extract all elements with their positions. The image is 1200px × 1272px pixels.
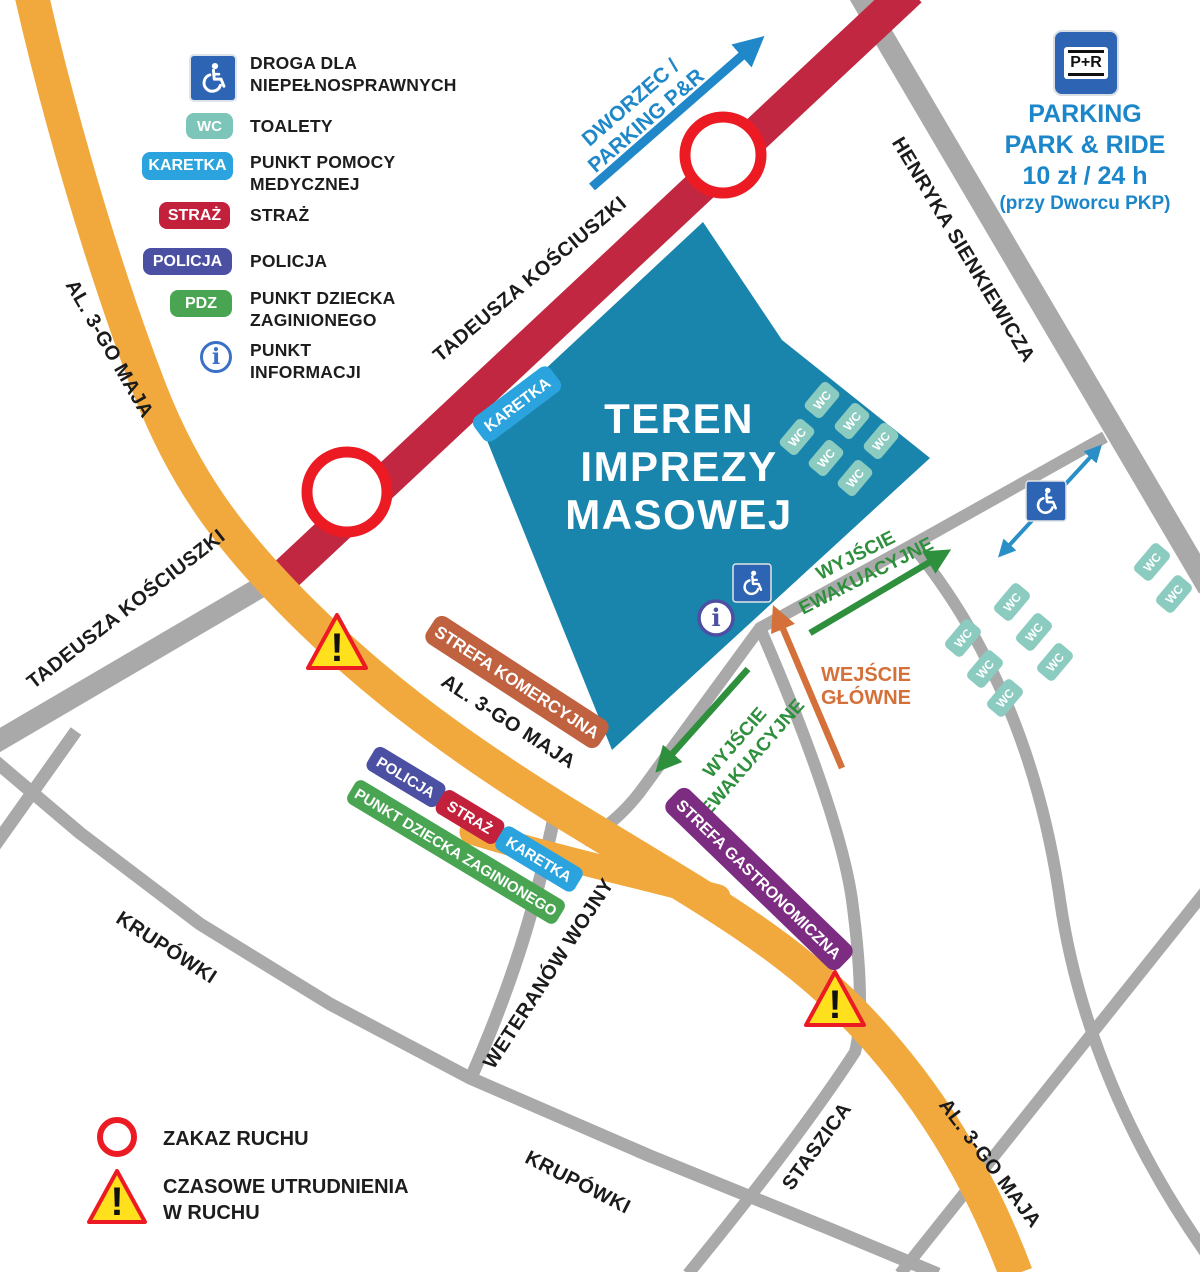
legend-label: DROGA DLANIEPEŁNOSPRAWNYCH [250,52,457,96]
svg-text:i: i [711,603,720,632]
legend-label: STRAŻ [250,204,309,226]
wc-badge: WC [1035,641,1075,683]
parking-note: (przy Dworcu PKP) [965,192,1200,216]
wheelchair-icon [733,564,771,602]
wheelchair-icon [1026,481,1066,521]
svg-text:!: ! [828,983,841,1027]
main-entrance-label: WEJŚCIE GŁÓWNE [821,662,911,709]
wheelchair-icon [189,54,237,102]
event-area-title: TEREN [604,395,754,442]
info-point-icon: i [699,601,733,635]
pdz-badge: PDZ [170,290,232,317]
karetka-badge: KARETKA [142,152,233,180]
legend-label: PUNKT POMOCYMEDYCZNEJ [250,151,395,195]
svg-text:!: ! [330,626,343,670]
parking-title: PARKING [965,99,1200,130]
park-and-ride-sign-icon: P+R [1053,30,1119,96]
info-icon: i [200,341,232,373]
policja-badge: POLICJA [143,248,232,275]
wc-badge: WC [1014,611,1054,653]
event-area-title: MASOWEJ [565,491,793,538]
street-label-krupowki-mid: KRUPÓWKI [521,1145,634,1219]
wc-badge: WC [186,113,233,139]
svg-text:WEJŚCIE: WEJŚCIE [821,662,911,686]
wc-badge: WC [1154,573,1194,615]
wc-badge: WC [985,677,1025,719]
svg-text:GŁÓWNE: GŁÓWNE [821,685,911,709]
no-traffic-circle-icon [307,452,387,532]
wc-badge: WC [992,581,1032,623]
legend-label: TOALETY [250,115,333,137]
straz-badge: STRAŻ [159,202,230,229]
legend-label: PUNKTINFORMACJI [250,339,361,383]
event-area-title: IMPREZY [580,443,777,490]
legend-label: POLICJA [250,250,327,272]
parking-subtitle: PARK & RIDE [965,130,1200,161]
wc-cluster-parking: WC WC WC WC WC WC WC WC [943,541,1194,719]
parking-price: 10 zł / 24 h [965,161,1200,192]
legend-label: PUNKT DZIECKAZAGINIONEGO [250,287,396,331]
warning-triangle-icon: ! [89,1171,145,1224]
road-diagonal-right [900,888,1200,1272]
wc-badge: WC [1132,541,1172,583]
street-label-krupowki-left: KRUPÓWKI [112,906,222,989]
czasowe-utrudnienia-label: CZASOWE UTRUDNIENIAW RUCHU [163,1174,409,1226]
zakaz-ruchu-label: ZAKAZ RUCHU [163,1126,309,1152]
no-traffic-circle-icon [97,1117,137,1157]
svg-text:!: ! [110,1180,123,1224]
park-and-ride-text: PARKING PARK & RIDE 10 zł / 24 h (przy D… [965,99,1200,216]
no-traffic-circle-icon [685,117,761,193]
